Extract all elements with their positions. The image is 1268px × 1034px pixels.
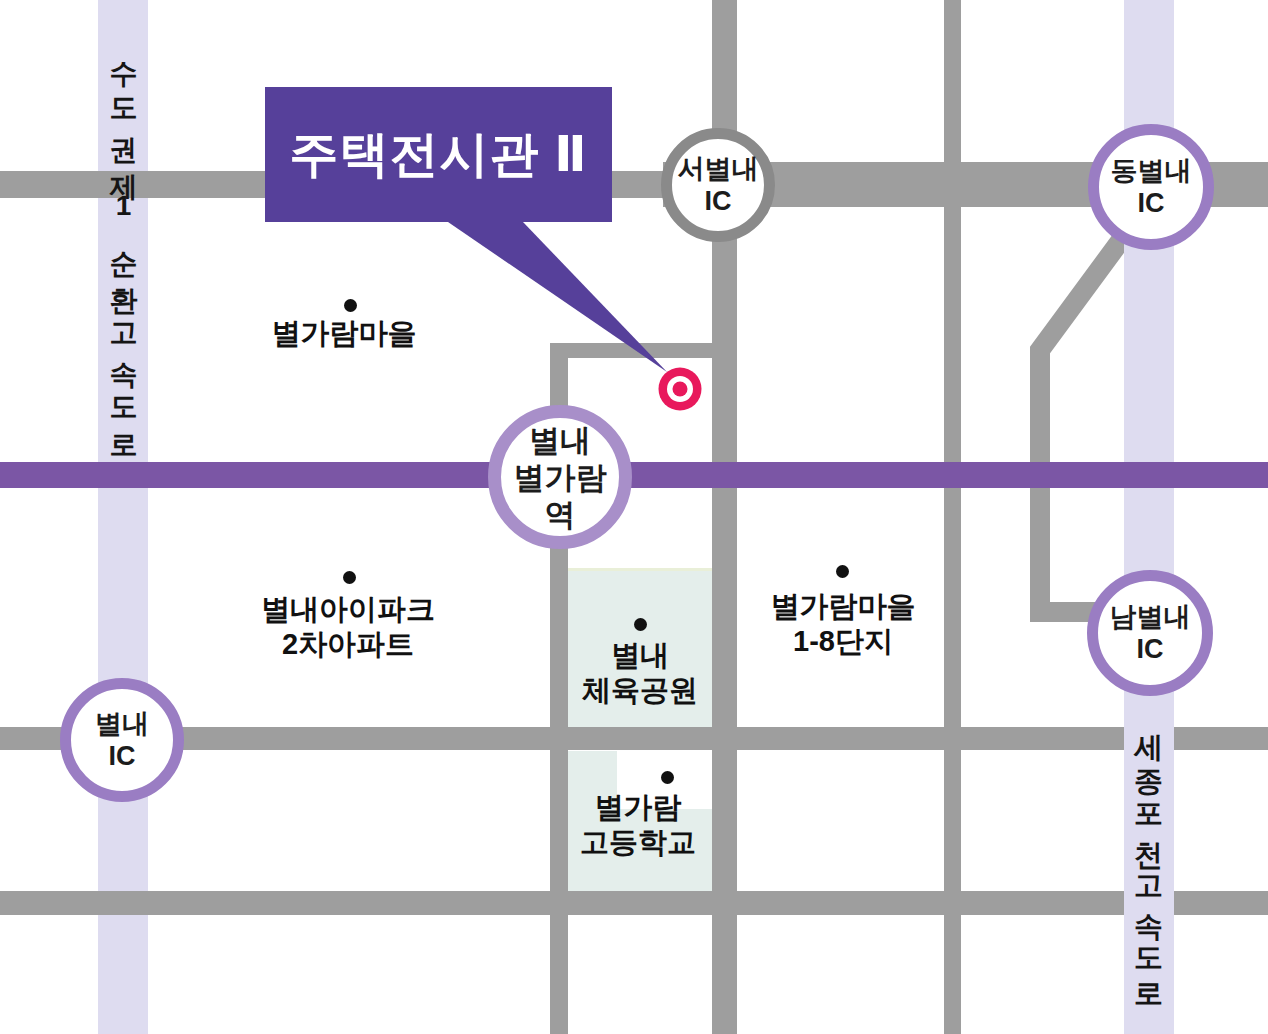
poi-dot-ipark <box>343 571 356 584</box>
ic-badge-south-byeollae: 남별내 IC <box>1087 570 1213 696</box>
station-name-line1: 별내 <box>529 422 591 459</box>
banner-label: 주택전시관 Ⅱ <box>290 122 588 188</box>
poi-text: 별내아이파크 <box>261 592 435 627</box>
poi-text: 별가람마을 <box>272 316 417 351</box>
ic-suffix: IC <box>1138 187 1165 219</box>
ramp-road-svg <box>0 0 1268 1034</box>
expressway-left-label: 수도권제1순환고속도로 <box>104 42 142 452</box>
callout-pointer-svg <box>440 222 680 377</box>
poi-text: 1-8단지 <box>771 624 916 659</box>
ic-name: 서별내 <box>678 153 759 185</box>
poi-label-ipark: 별내아이파크 2차아파트 <box>261 592 435 662</box>
poi-label-village-complex: 별가람마을 1-8단지 <box>771 589 916 659</box>
poi-text: 별내 <box>582 638 698 673</box>
station-badge-byeollae-byeolgaram: 별내 별가람역 <box>488 405 632 549</box>
ic-name: 남별내 <box>1110 601 1191 633</box>
ic-name: 동별내 <box>1111 155 1192 187</box>
location-map: 수도권제1순환고속도로 세종포천고속도로 별내 별가람역 서별내 IC 동별내 … <box>0 0 1268 1034</box>
ic-suffix: IC <box>1137 633 1164 665</box>
poi-dot-sports-park <box>634 618 647 631</box>
subway-line <box>0 462 1268 488</box>
expressway-right-label: 세종포천고속도로 <box>1129 712 1169 1000</box>
poi-dot-byeolgaram-village <box>344 299 357 312</box>
poi-text: 고등학교 <box>580 825 696 860</box>
poi-text: 2차아파트 <box>261 627 435 662</box>
ic-badge-east-byeollae: 동별내 IC <box>1088 124 1214 250</box>
ic-suffix: IC <box>705 185 732 217</box>
station-name-line2: 별가람역 <box>501 459 619 533</box>
poi-text: 별가람마을 <box>771 589 916 624</box>
callout-banner: 주택전시관 Ⅱ <box>265 87 612 222</box>
poi-label-high-school: 별가람 고등학교 <box>580 790 696 860</box>
destination-marker-svg <box>655 364 705 414</box>
poi-label-sports-park: 별내 체육공원 <box>582 638 698 708</box>
ic-name: 별내 <box>95 708 149 740</box>
ic-suffix: IC <box>109 740 136 772</box>
callout-pointer <box>448 222 667 372</box>
poi-text: 체육공원 <box>582 673 698 708</box>
ic-badge-byeollae: 별내 IC <box>60 678 184 802</box>
poi-dot-village-complex <box>836 565 849 578</box>
poi-text: 별가람 <box>580 790 696 825</box>
poi-label-byeolgaram-village: 별가람마을 <box>272 316 417 351</box>
marker-core <box>673 382 688 397</box>
poi-dot-high-school <box>661 771 674 784</box>
